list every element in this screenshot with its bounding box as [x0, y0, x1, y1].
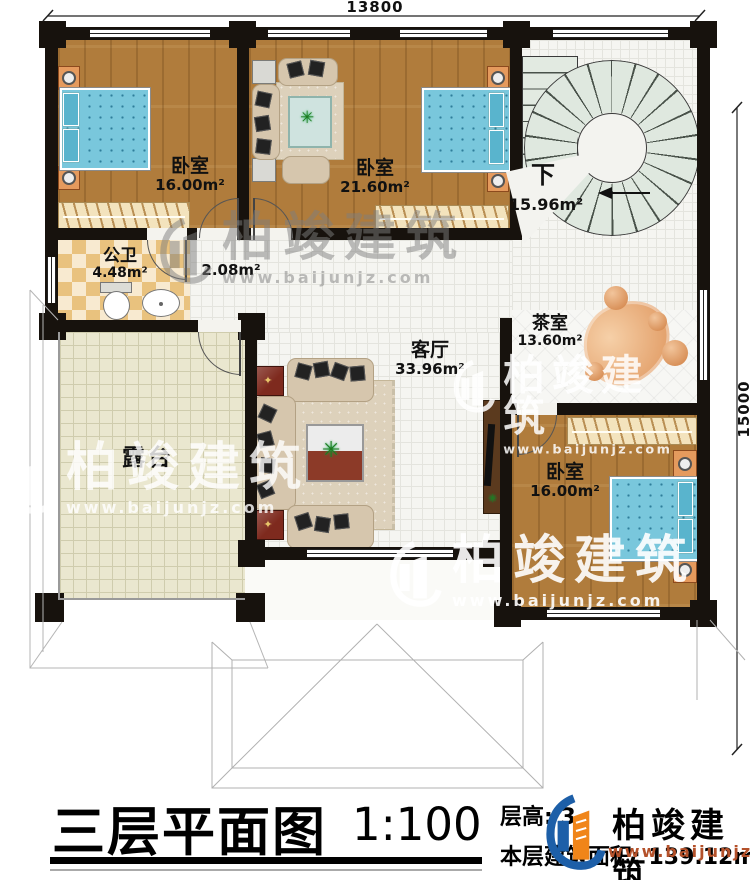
door-leaf	[253, 198, 255, 240]
stairwell-area-label: 15.96m²	[506, 196, 586, 214]
dimension-width: 13800	[330, 0, 420, 16]
door-leaf	[185, 240, 187, 282]
bedroom-n-label: 卧室 21.60m²	[325, 158, 425, 195]
door-leaf	[239, 332, 241, 376]
hallway-label: 2.08m²	[198, 262, 264, 279]
floor-plan-sheet: ✳ ✳ ✳	[0, 0, 750, 880]
bathroom-label: 公卫 4.48m²	[85, 247, 155, 281]
roof-outline	[212, 620, 745, 788]
bedroom-se-label: 卧室 16.00m²	[515, 462, 615, 499]
brand-logo-icon	[545, 786, 607, 876]
living-room-label: 客厅 33.96m²	[385, 340, 475, 377]
annotation-lines	[0, 0, 750, 880]
dimension-height: 15000	[735, 379, 750, 439]
brand-name: 柏竣建筑	[612, 798, 750, 880]
sheet-title: 三层平面图	[52, 790, 327, 866]
title-underline	[50, 857, 482, 864]
stair-arrow-icon	[598, 187, 612, 199]
bedroom-nw-label: 卧室 16.00m²	[140, 156, 240, 193]
tea-room-label: 茶室 13.60m²	[505, 314, 595, 349]
title-underline-thin	[50, 869, 482, 871]
door-leaf	[237, 198, 239, 240]
brand-website: www.baijunjz.com	[608, 842, 750, 861]
stairwell-label: 下	[516, 162, 570, 188]
door-leaf	[517, 415, 519, 457]
sheet-scale: 1:100	[352, 798, 482, 851]
terrace-label: 露台	[108, 446, 188, 471]
